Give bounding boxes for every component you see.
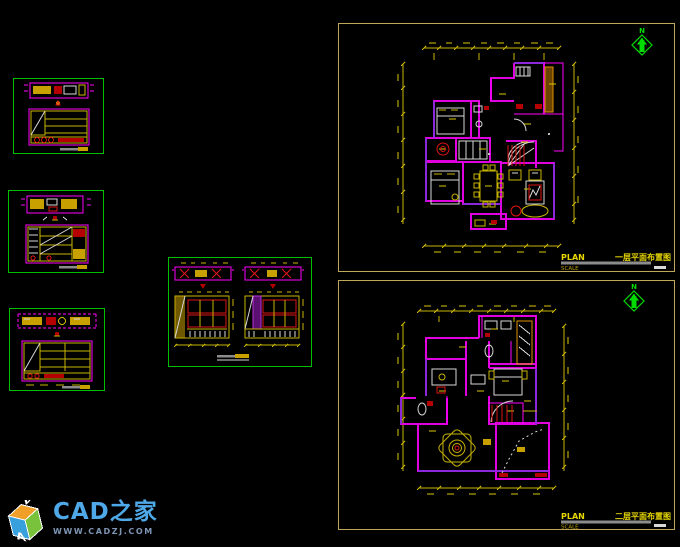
- elevation-group-1: [172, 263, 234, 347]
- plan-label: PLAN: [561, 253, 585, 262]
- floor1-furniture-yellow: [434, 67, 556, 226]
- title-block: PLAN SCALE 二层平面布置图: [561, 511, 671, 529]
- drawing-title-bar: [62, 385, 90, 389]
- elevation: [22, 341, 92, 385]
- north-arrow-icon: N: [632, 27, 652, 55]
- cabinet-elevations: [169, 258, 311, 366]
- cadzj-watermark: A D CAD之家 WWW.CADZJ.COM: [7, 500, 158, 544]
- plan-strip: [18, 314, 96, 328]
- scale-label: SCALE: [561, 525, 579, 530]
- detail-drawing-panel-1[interactable]: [13, 78, 104, 154]
- plan-strip: [24, 83, 94, 98]
- sheet-title: 二层平面布置图: [615, 511, 671, 521]
- cad-canvas[interactable]: N: [0, 0, 680, 547]
- sheet-floor1[interactable]: N: [338, 23, 675, 272]
- elevations-panel[interactable]: [168, 257, 312, 367]
- elevation-group-2: [242, 263, 304, 347]
- cabinet-detail-2: [9, 191, 103, 272]
- wardrobe: [517, 321, 532, 364]
- title-block: PLAN SCALE 一层平面布置图: [561, 252, 671, 271]
- floor1-plan-drawing: N: [339, 24, 674, 271]
- logo-title: CAD之家: [53, 500, 158, 524]
- scale-label: SCALE: [561, 266, 579, 271]
- section-marker-icon: [43, 216, 67, 220]
- floor2-walls: [401, 316, 549, 479]
- sheet-floor2[interactable]: N: [338, 280, 675, 530]
- cabinet-detail-3: [10, 309, 104, 390]
- drawing-title-bar: [217, 354, 249, 360]
- elevation: [26, 225, 88, 263]
- cabinet-detail-1: [14, 79, 103, 153]
- dimension-lines: [398, 306, 568, 494]
- section-marker-icon: [56, 101, 60, 105]
- section-marker-icon: [54, 332, 60, 336]
- ceiling-mandala: [437, 428, 477, 468]
- floor2-furniture-white: [418, 321, 544, 473]
- scale-value-mark: [654, 524, 666, 527]
- elevation: [29, 109, 89, 145]
- plan-label: PLAN: [561, 512, 585, 521]
- floor2-plan-drawing: N: [339, 281, 674, 529]
- detail-drawing-panel-2[interactable]: [8, 190, 104, 273]
- scale-value-mark: [654, 266, 666, 269]
- cadzj-cube-icon: A D: [7, 500, 45, 544]
- logo-url: WWW.CADZJ.COM: [53, 527, 158, 536]
- north-label: N: [631, 283, 637, 291]
- sheet-title: 一层平面布置图: [615, 252, 671, 262]
- detail-drawing-panel-3[interactable]: [9, 308, 105, 391]
- drawing-title-bar: [59, 265, 87, 269]
- north-arrow-icon: N: [624, 283, 644, 311]
- plan-strip: [21, 196, 91, 213]
- north-label: N: [639, 27, 645, 35]
- drawing-title-bar: [60, 147, 88, 151]
